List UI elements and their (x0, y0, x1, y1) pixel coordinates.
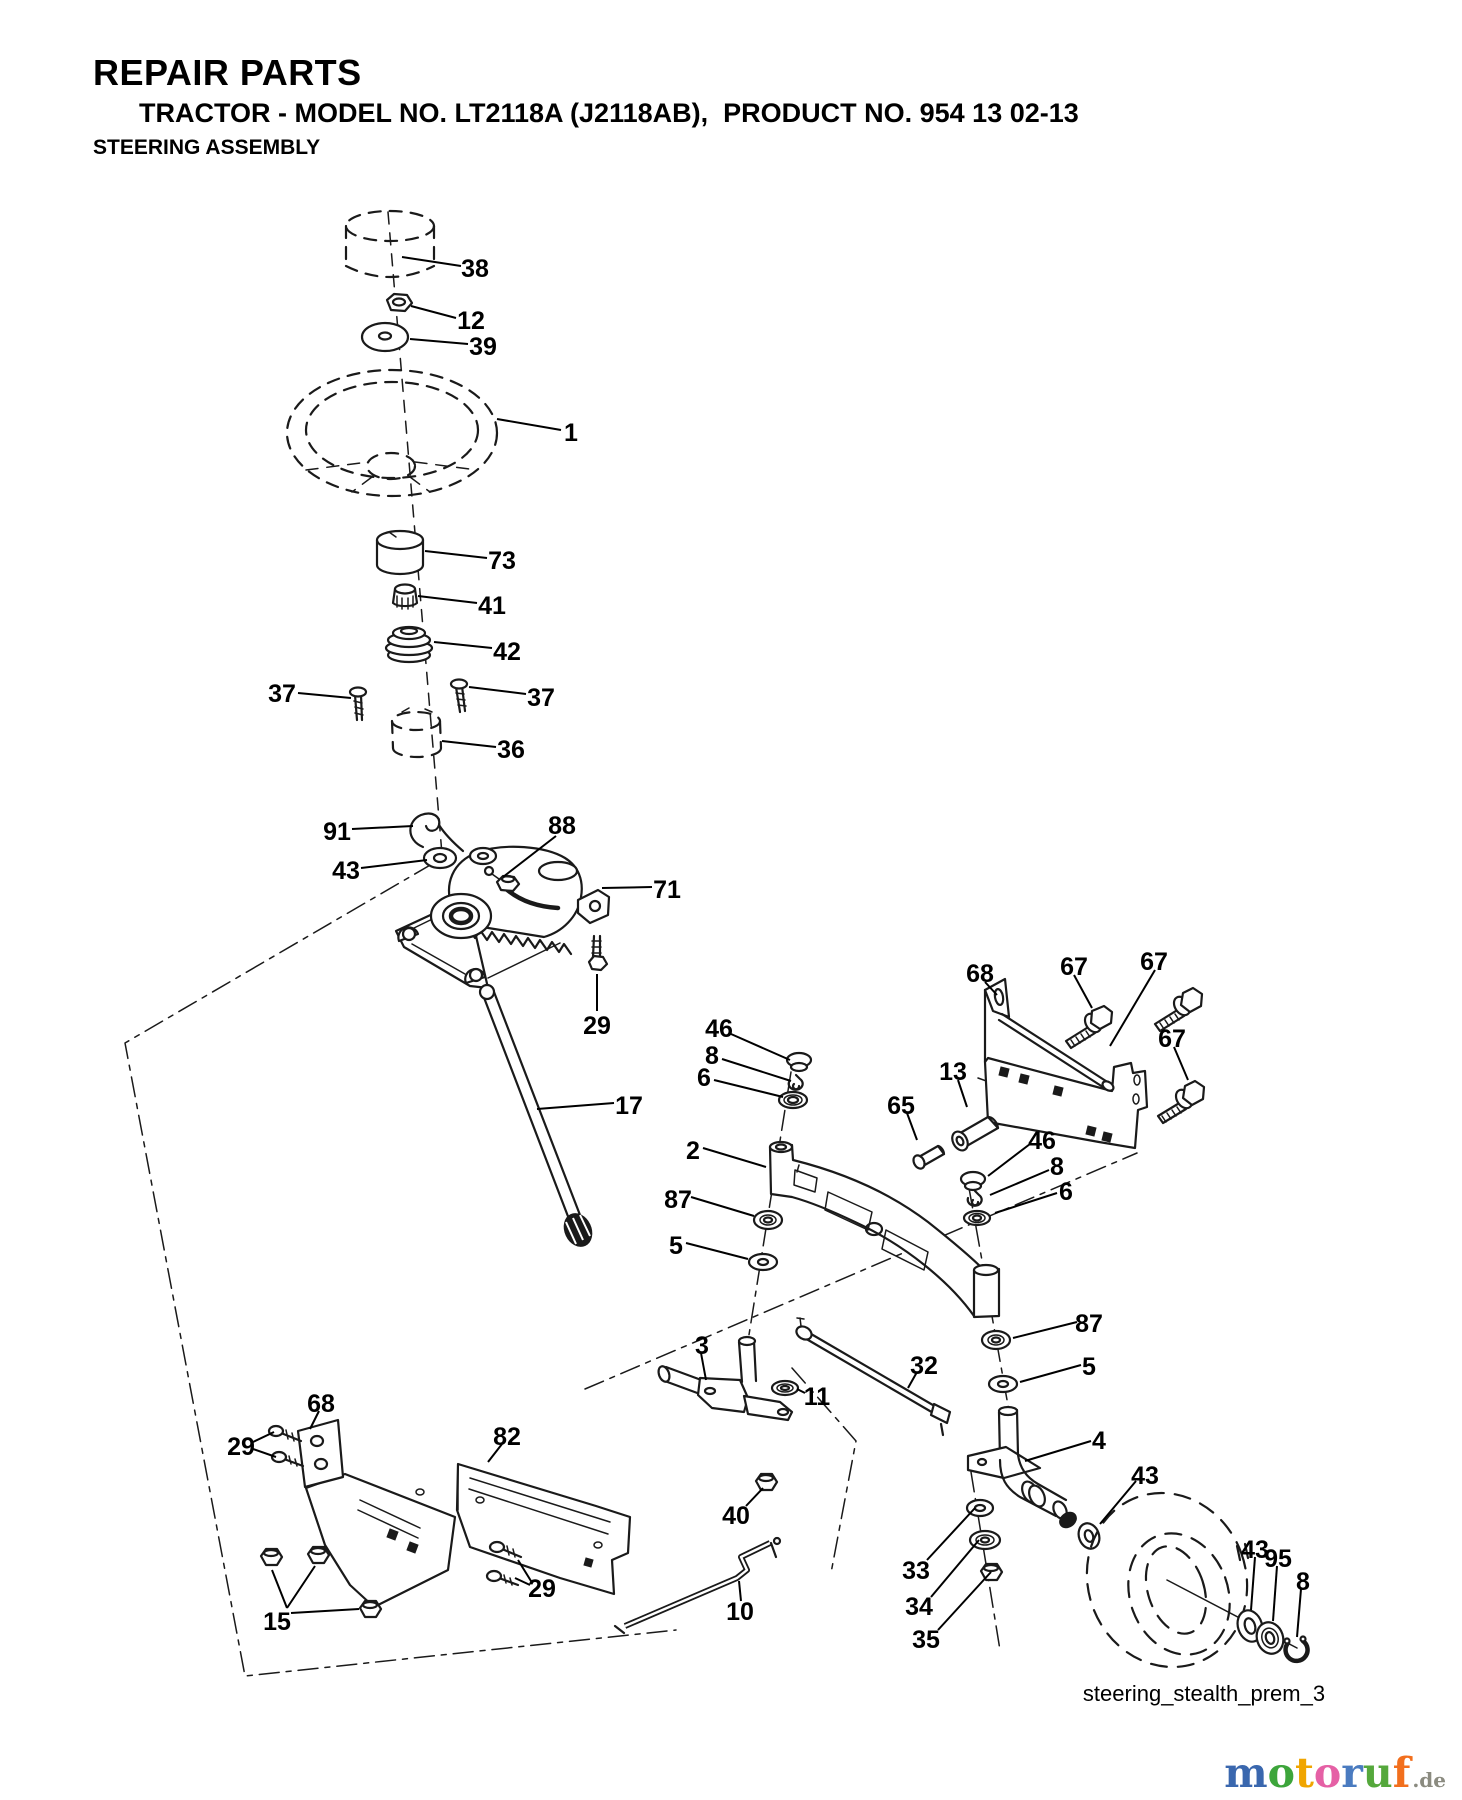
steering-boot-42 (386, 627, 432, 662)
bracket-68-left (298, 1420, 455, 1607)
part-callout-67: 67 (1158, 1025, 1186, 1053)
part-callout-87: 87 (664, 1186, 692, 1214)
leader-line-12 (411, 306, 456, 318)
part-callout-68: 68 (966, 960, 994, 988)
leader-line-29 (253, 1432, 274, 1442)
locknut-12 (387, 294, 412, 311)
leader-line-5 (686, 1243, 748, 1259)
leader-line-67 (1110, 970, 1155, 1046)
steering-bushing-36 (392, 708, 441, 757)
part-callout-6: 6 (697, 1064, 711, 1092)
leader-line-39 (410, 339, 468, 344)
part-callout-91: 91 (323, 818, 351, 846)
leader-line-43 (1251, 1557, 1255, 1610)
part-callout-12: 12 (457, 307, 485, 335)
part-callout-29: 29 (227, 1433, 255, 1461)
part-callout-29: 29 (583, 1012, 611, 1040)
washer-39 (362, 323, 408, 351)
part-callout-5: 5 (669, 1232, 683, 1260)
part-callout-36: 36 (497, 736, 525, 764)
adjuster-rod-10 (615, 1538, 780, 1633)
spindle-3 (657, 1337, 792, 1420)
part-callout-68: 68 (307, 1390, 335, 1418)
part-callout-46: 46 (705, 1015, 733, 1043)
leader-line-5 (1020, 1365, 1081, 1382)
nut-40 (756, 1474, 777, 1490)
leader-line-6 (714, 1080, 783, 1097)
screw-37-left (350, 688, 366, 721)
part-callout-8: 8 (1296, 1568, 1310, 1596)
part-callout-8: 8 (1050, 1153, 1064, 1181)
leader-line-8 (990, 1170, 1049, 1195)
part-callout-4: 4 (1092, 1427, 1106, 1455)
part-callout-13: 13 (939, 1058, 967, 1086)
leader-line-37 (298, 693, 351, 698)
leader-line-73 (425, 551, 487, 558)
part-callout-15: 15 (263, 1608, 291, 1636)
bolt-67-lower-right (1158, 1081, 1204, 1123)
watermark-suffix: .de (1412, 1768, 1446, 1792)
washer-6-right (964, 1211, 990, 1225)
part-callout-43: 43 (332, 857, 360, 885)
part-callout-46: 46 (1028, 1127, 1056, 1155)
leader-line-2 (703, 1148, 766, 1167)
leader-line-91 (352, 826, 413, 829)
part-callout-32: 32 (910, 1352, 938, 1380)
part-callout-34: 34 (905, 1593, 933, 1621)
part-callout-37: 37 (268, 680, 296, 708)
part-callout-6: 6 (1059, 1178, 1073, 1206)
washer-5-left (749, 1254, 777, 1270)
leader-line-36 (442, 741, 496, 747)
wheel-insert-73 (377, 531, 423, 574)
cap-46-right (961, 1172, 985, 1190)
leader-line-29 (253, 1449, 276, 1457)
leader-line-95 (1273, 1566, 1277, 1621)
screw-37-right (451, 680, 467, 713)
leader-line-37 (469, 687, 526, 694)
watermark-letter: t (1295, 1749, 1314, 1797)
steering-gear-assembly-71 (396, 847, 609, 988)
leader-line-43 (361, 860, 427, 868)
watermark-letter: r (1341, 1749, 1363, 1797)
leader-line-41 (418, 596, 477, 603)
e-ring-8 (1285, 1637, 1308, 1661)
part-callout-3: 3 (695, 1332, 709, 1360)
watermark-letter: u (1363, 1749, 1393, 1797)
bolt-67-middle (1066, 1006, 1112, 1048)
diagram-caption: steering_stealth_prem_3 (1083, 1681, 1325, 1706)
leader-line-42 (434, 642, 492, 648)
leader-line-15 (291, 1609, 359, 1613)
part-callout-38: 38 (461, 255, 489, 283)
part-callout-2: 2 (686, 1137, 700, 1165)
part-callout-33: 33 (902, 1557, 930, 1585)
leader-line-6 (995, 1193, 1057, 1213)
part-callout-1: 1 (564, 419, 578, 447)
watermark-letter: o (1268, 1749, 1295, 1797)
watermark-word: motoruf (1224, 1753, 1410, 1794)
part-callout-88: 88 (548, 812, 576, 840)
part-callout-40: 40 (722, 1502, 750, 1530)
part-callout-11: 11 (804, 1383, 831, 1411)
retainer-clip-91 (410, 814, 463, 851)
leader-line-87 (691, 1197, 754, 1216)
part-callout-71: 71 (653, 876, 681, 904)
leader-line-71 (602, 887, 652, 888)
leader-line-15 (272, 1570, 287, 1608)
washer-87-left (754, 1211, 782, 1229)
leader-line-46 (988, 1144, 1030, 1176)
part-callout-37: 37 (527, 684, 555, 712)
part-callout-17: 17 (615, 1092, 643, 1120)
part-callout-35: 35 (912, 1626, 940, 1654)
spacer-13 (949, 1117, 998, 1153)
part-callout-42: 42 (493, 638, 521, 666)
part-callout-29: 29 (528, 1575, 556, 1603)
part-callout-39: 39 (469, 333, 497, 361)
part-callout-5: 5 (1082, 1353, 1096, 1381)
washer-11 (772, 1381, 798, 1395)
steering-adapter-41 (393, 585, 417, 610)
screw-29-gear (589, 936, 607, 970)
washer-43-upper (424, 848, 456, 868)
part-callout-73: 73 (488, 547, 516, 575)
washer-6-left (779, 1092, 807, 1108)
leader-line-38 (402, 257, 461, 266)
washer-43-mid (1075, 1520, 1103, 1551)
steering-assembly-diagram: steering_stealth_prem_3 3812391734142373… (0, 0, 1462, 1800)
leader-line-15 (287, 1566, 315, 1608)
leader-line-8 (722, 1059, 791, 1081)
leader-line-4 (1025, 1441, 1091, 1461)
leader-line-17 (537, 1103, 614, 1109)
watermark-logo: motoruf.de (1224, 1753, 1446, 1794)
callout-layer: 3812391734142373736914388712917468628756… (227, 255, 1310, 1654)
part-callout-41: 41 (478, 592, 506, 620)
part-callout-43: 43 (1131, 1462, 1159, 1490)
axle-assembly-2 (770, 1142, 999, 1317)
leader-line-46 (731, 1034, 790, 1060)
bracket-68-right (985, 979, 1147, 1148)
nut-35 (981, 1564, 1002, 1580)
steering-wheel-1 (287, 370, 497, 496)
watermark-letter: o (1314, 1749, 1341, 1797)
cap-46-left (787, 1053, 811, 1071)
steering-shaft-17 (480, 985, 597, 1251)
part-callout-10: 10 (726, 1598, 754, 1626)
watermark-letter: m (1224, 1749, 1267, 1797)
bushing-65 (911, 1146, 944, 1171)
leader-line-1 (497, 419, 561, 430)
part-callout-65: 65 (887, 1092, 915, 1120)
part-callout-67: 67 (1140, 948, 1168, 976)
leader-line-87 (1013, 1322, 1077, 1338)
part-callout-82: 82 (493, 1423, 521, 1451)
repair-parts-page: REPAIR PARTS TRACTOR - MODEL NO. LT2118A… (0, 0, 1462, 1800)
leader-line-8 (1297, 1589, 1301, 1637)
part-callout-87: 87 (1075, 1310, 1103, 1338)
washer-87-right (982, 1331, 1010, 1349)
part-callout-67: 67 (1060, 953, 1088, 981)
washer-5-right (989, 1376, 1017, 1392)
part-callout-95: 95 (1264, 1545, 1292, 1573)
watermark-letter: f (1393, 1749, 1411, 1797)
